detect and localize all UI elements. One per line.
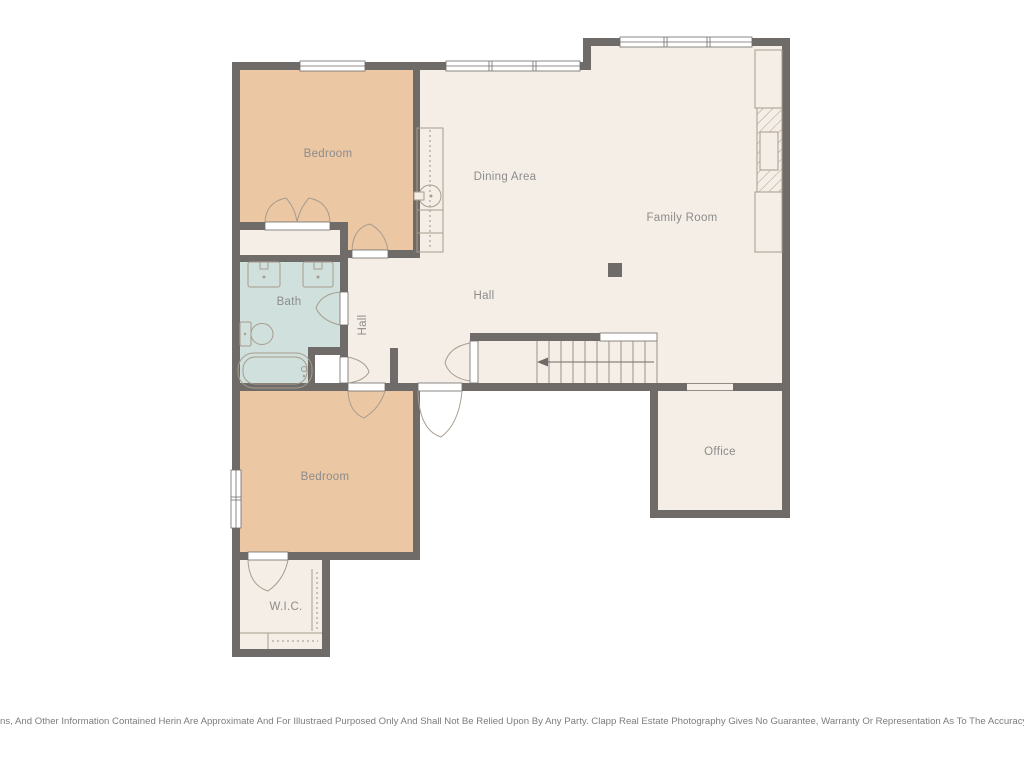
fireplace-builtins [755, 50, 782, 252]
label-bedroom-top: Bedroom [304, 148, 353, 160]
room-bedroom-top-ext [348, 222, 413, 250]
window-dining [446, 61, 580, 71]
label-family: Family Room [646, 212, 717, 224]
threshold-bedroom-top-door [352, 250, 388, 258]
threshold-closet-doors [265, 222, 330, 230]
threshold-stairs-door [470, 341, 478, 383]
room-closet [240, 230, 340, 255]
stair-railing [600, 333, 657, 341]
label-bath: Bath [277, 296, 302, 308]
floor-plan-page: Bedroom Dining Area Family Room Hall Hal… [0, 0, 1024, 768]
opening-office [687, 383, 733, 391]
floor-plan-canvas: Bedroom Dining Area Family Room Hall Hal… [0, 0, 1024, 768]
builtin-cabinet-lower [755, 192, 782, 252]
door-entry [418, 391, 462, 437]
threshold-bath-door [340, 292, 348, 325]
label-hall-main: Hall [473, 290, 494, 302]
label-hall-corridor: Hall [357, 314, 369, 335]
room-linen-closet [315, 355, 340, 383]
structural-post [608, 263, 622, 277]
label-dining: Dining Area [474, 171, 537, 183]
threshold-entry-door [418, 383, 462, 391]
window-bedroom-bottom [231, 470, 241, 528]
window-bedroom-top [300, 61, 365, 71]
room-family-top-strip [591, 46, 782, 70]
threshold-wic-door [248, 552, 288, 560]
threshold-bedroom-bottom-door [348, 383, 385, 391]
label-wic: W.I.C. [269, 601, 302, 613]
builtin-cabinet-upper [755, 50, 782, 108]
room-bedroom-top [240, 70, 413, 222]
fireplace-firebox [760, 132, 778, 170]
threshold-linen-door [340, 357, 348, 383]
label-bedroom-bottom: Bedroom [301, 471, 350, 483]
window-family [620, 37, 752, 47]
label-office: Office [704, 446, 736, 458]
disclaimer-text: All Images, Dimensions, And Other Inform… [0, 716, 1024, 727]
